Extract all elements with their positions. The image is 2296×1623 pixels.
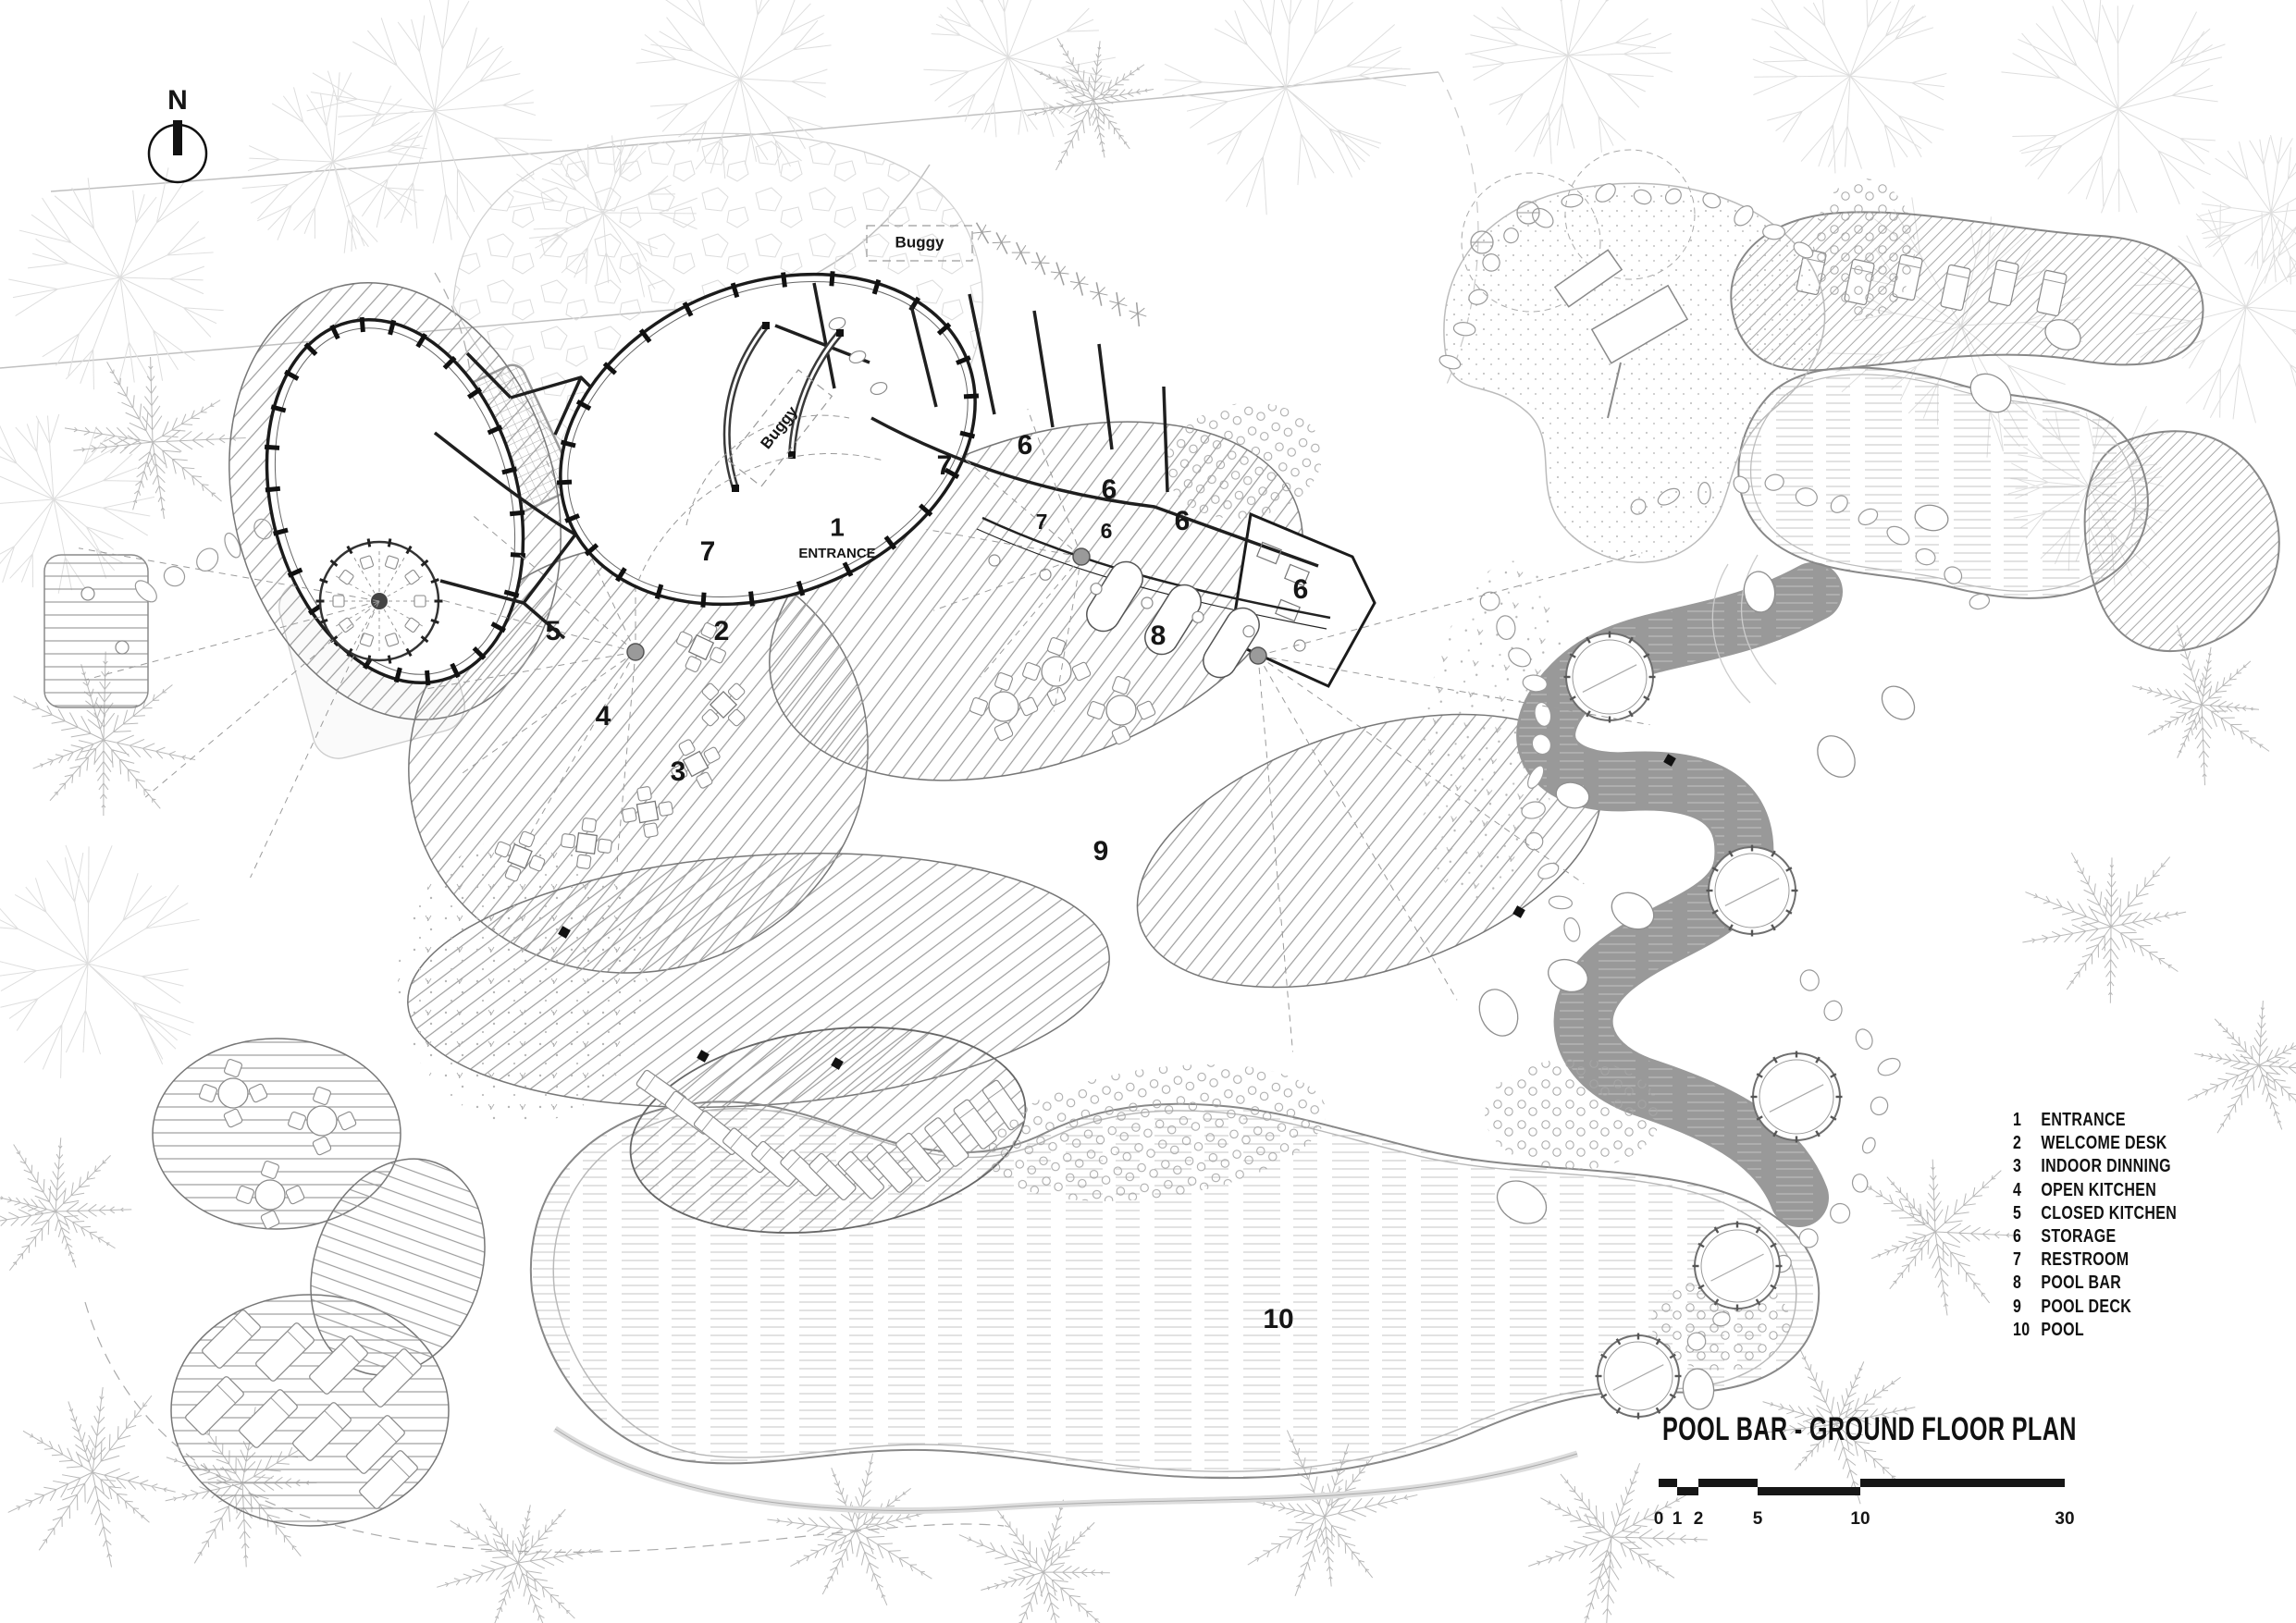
scale-tick: 0: [1654, 1509, 1664, 1529]
label: Buggy: [895, 233, 944, 251]
floor-plan-canvas: 75243766766689101ENTRANCEBuggyBuggyN0125…: [0, 0, 2296, 1623]
label: ENTRANCE: [798, 546, 875, 561]
legend-item: 5CLOSED KITCHEN: [2013, 1202, 2177, 1225]
legend-item-number: 4: [2013, 1179, 2041, 1202]
tree-icon: [959, 1500, 1110, 1623]
legend-item-number: 5: [2013, 1202, 2041, 1225]
legend-item: 1ENTRANCE: [2013, 1109, 2177, 1132]
tree-icon: [1861, 1160, 2018, 1316]
label: 1: [830, 512, 845, 541]
tree-icon: [8, 1387, 176, 1568]
legend-item: 3INDOOR DINNING: [2013, 1155, 2177, 1178]
legend-item-label: OPEN KITCHEN: [2041, 1179, 2156, 1202]
tree-icon: [2022, 853, 2186, 1003]
room-label: 6: [1102, 474, 1117, 505]
room-label: 10: [1263, 1304, 1293, 1334]
legend-item-number: 8: [2013, 1272, 2041, 1295]
tree-icon: [2197, 135, 2296, 284]
legend-item: 6STORAGE: [2013, 1225, 2177, 1248]
room-label: 7: [1036, 510, 1048, 534]
scale-tick: 5: [1753, 1509, 1763, 1529]
tree-icon: [0, 1137, 131, 1270]
room-label: 5: [546, 616, 562, 646]
legend-item: 2WELCOME DESK: [2013, 1132, 2177, 1155]
tree-icon: [437, 1504, 600, 1623]
legend-item-label: POOL BAR: [2041, 1272, 2121, 1295]
room-label: 8: [1151, 621, 1167, 651]
legend-item: 4OPEN KITCHEN: [2013, 1179, 2177, 1202]
room-label: 7: [700, 536, 716, 567]
tree-icon: [65, 357, 246, 519]
room-label: 6: [1293, 574, 1309, 605]
legend-item-number: 1: [2013, 1109, 2041, 1132]
legend-item-number: 7: [2013, 1248, 2041, 1272]
legend-item-label: RESTROOM: [2041, 1248, 2129, 1272]
tree-icon: [1465, 0, 1673, 164]
legend-item: 7RESTROOM: [2013, 1248, 2177, 1272]
room-label: 2: [714, 616, 730, 646]
tree-icon: [2001, 0, 2225, 213]
side-deck: [44, 555, 148, 707]
legend-item-number: 3: [2013, 1155, 2041, 1178]
upper-pool: [1738, 368, 2148, 598]
room-label: 9: [1093, 836, 1109, 867]
legend-item: 8POOL BAR: [2013, 1272, 2177, 1295]
legend-item-label: POOL DECK: [2041, 1296, 2131, 1319]
legend-item-label: ENTRANCE: [2041, 1109, 2125, 1132]
legend-item-label: INDOOR DINNING: [2041, 1155, 2170, 1178]
legend-item: 9POOL DECK: [2013, 1296, 2177, 1319]
legend-item-label: WELCOME DESK: [2041, 1132, 2166, 1155]
scale-bar: 01251030: [1654, 1479, 2075, 1529]
scale-tick: 30: [2055, 1509, 2074, 1529]
legend-item-number: 9: [2013, 1296, 2041, 1319]
legend-item-label: POOL: [2041, 1319, 2084, 1342]
legend-item-label: CLOSED KITCHEN: [2041, 1202, 2177, 1225]
room-label: 6: [1018, 430, 1033, 461]
scale-tick: 2: [1694, 1509, 1704, 1529]
label: N: [167, 85, 188, 116]
tree-icon: [1752, 0, 1947, 173]
scale-tick: 10: [1850, 1509, 1870, 1529]
legend-item-label: STORAGE: [2041, 1225, 2116, 1248]
tree-icon: [1163, 0, 1411, 215]
legend-item-number: 10: [2013, 1319, 2041, 1342]
north-arrow: N: [149, 85, 206, 182]
scale-tick: 1: [1673, 1509, 1683, 1529]
room-label: 6: [1101, 519, 1113, 543]
tree-icon: [8, 167, 223, 389]
tree-icon: [767, 1454, 932, 1605]
legend-item-number: 6: [2013, 1225, 2041, 1248]
tree-icon: [0, 845, 199, 1078]
legend-item: 10POOL: [2013, 1319, 2177, 1342]
legend: 1ENTRANCE2WELCOME DESK3INDOOR DINNING4OP…: [2013, 1109, 2217, 1342]
legend-item-number: 2: [2013, 1132, 2041, 1155]
room-label: 6: [1175, 506, 1191, 536]
plan-title: POOL BAR - GROUND FLOOR PLAN: [1662, 1411, 2077, 1448]
room-label: 7: [937, 450, 953, 481]
room-label: 3: [671, 756, 686, 787]
tree-icon: [1028, 38, 1154, 170]
drawing-sheet: 75243766766689101ENTRANCEBuggyBuggyN0125…: [0, 0, 2296, 1623]
room-label: 4: [596, 701, 611, 732]
